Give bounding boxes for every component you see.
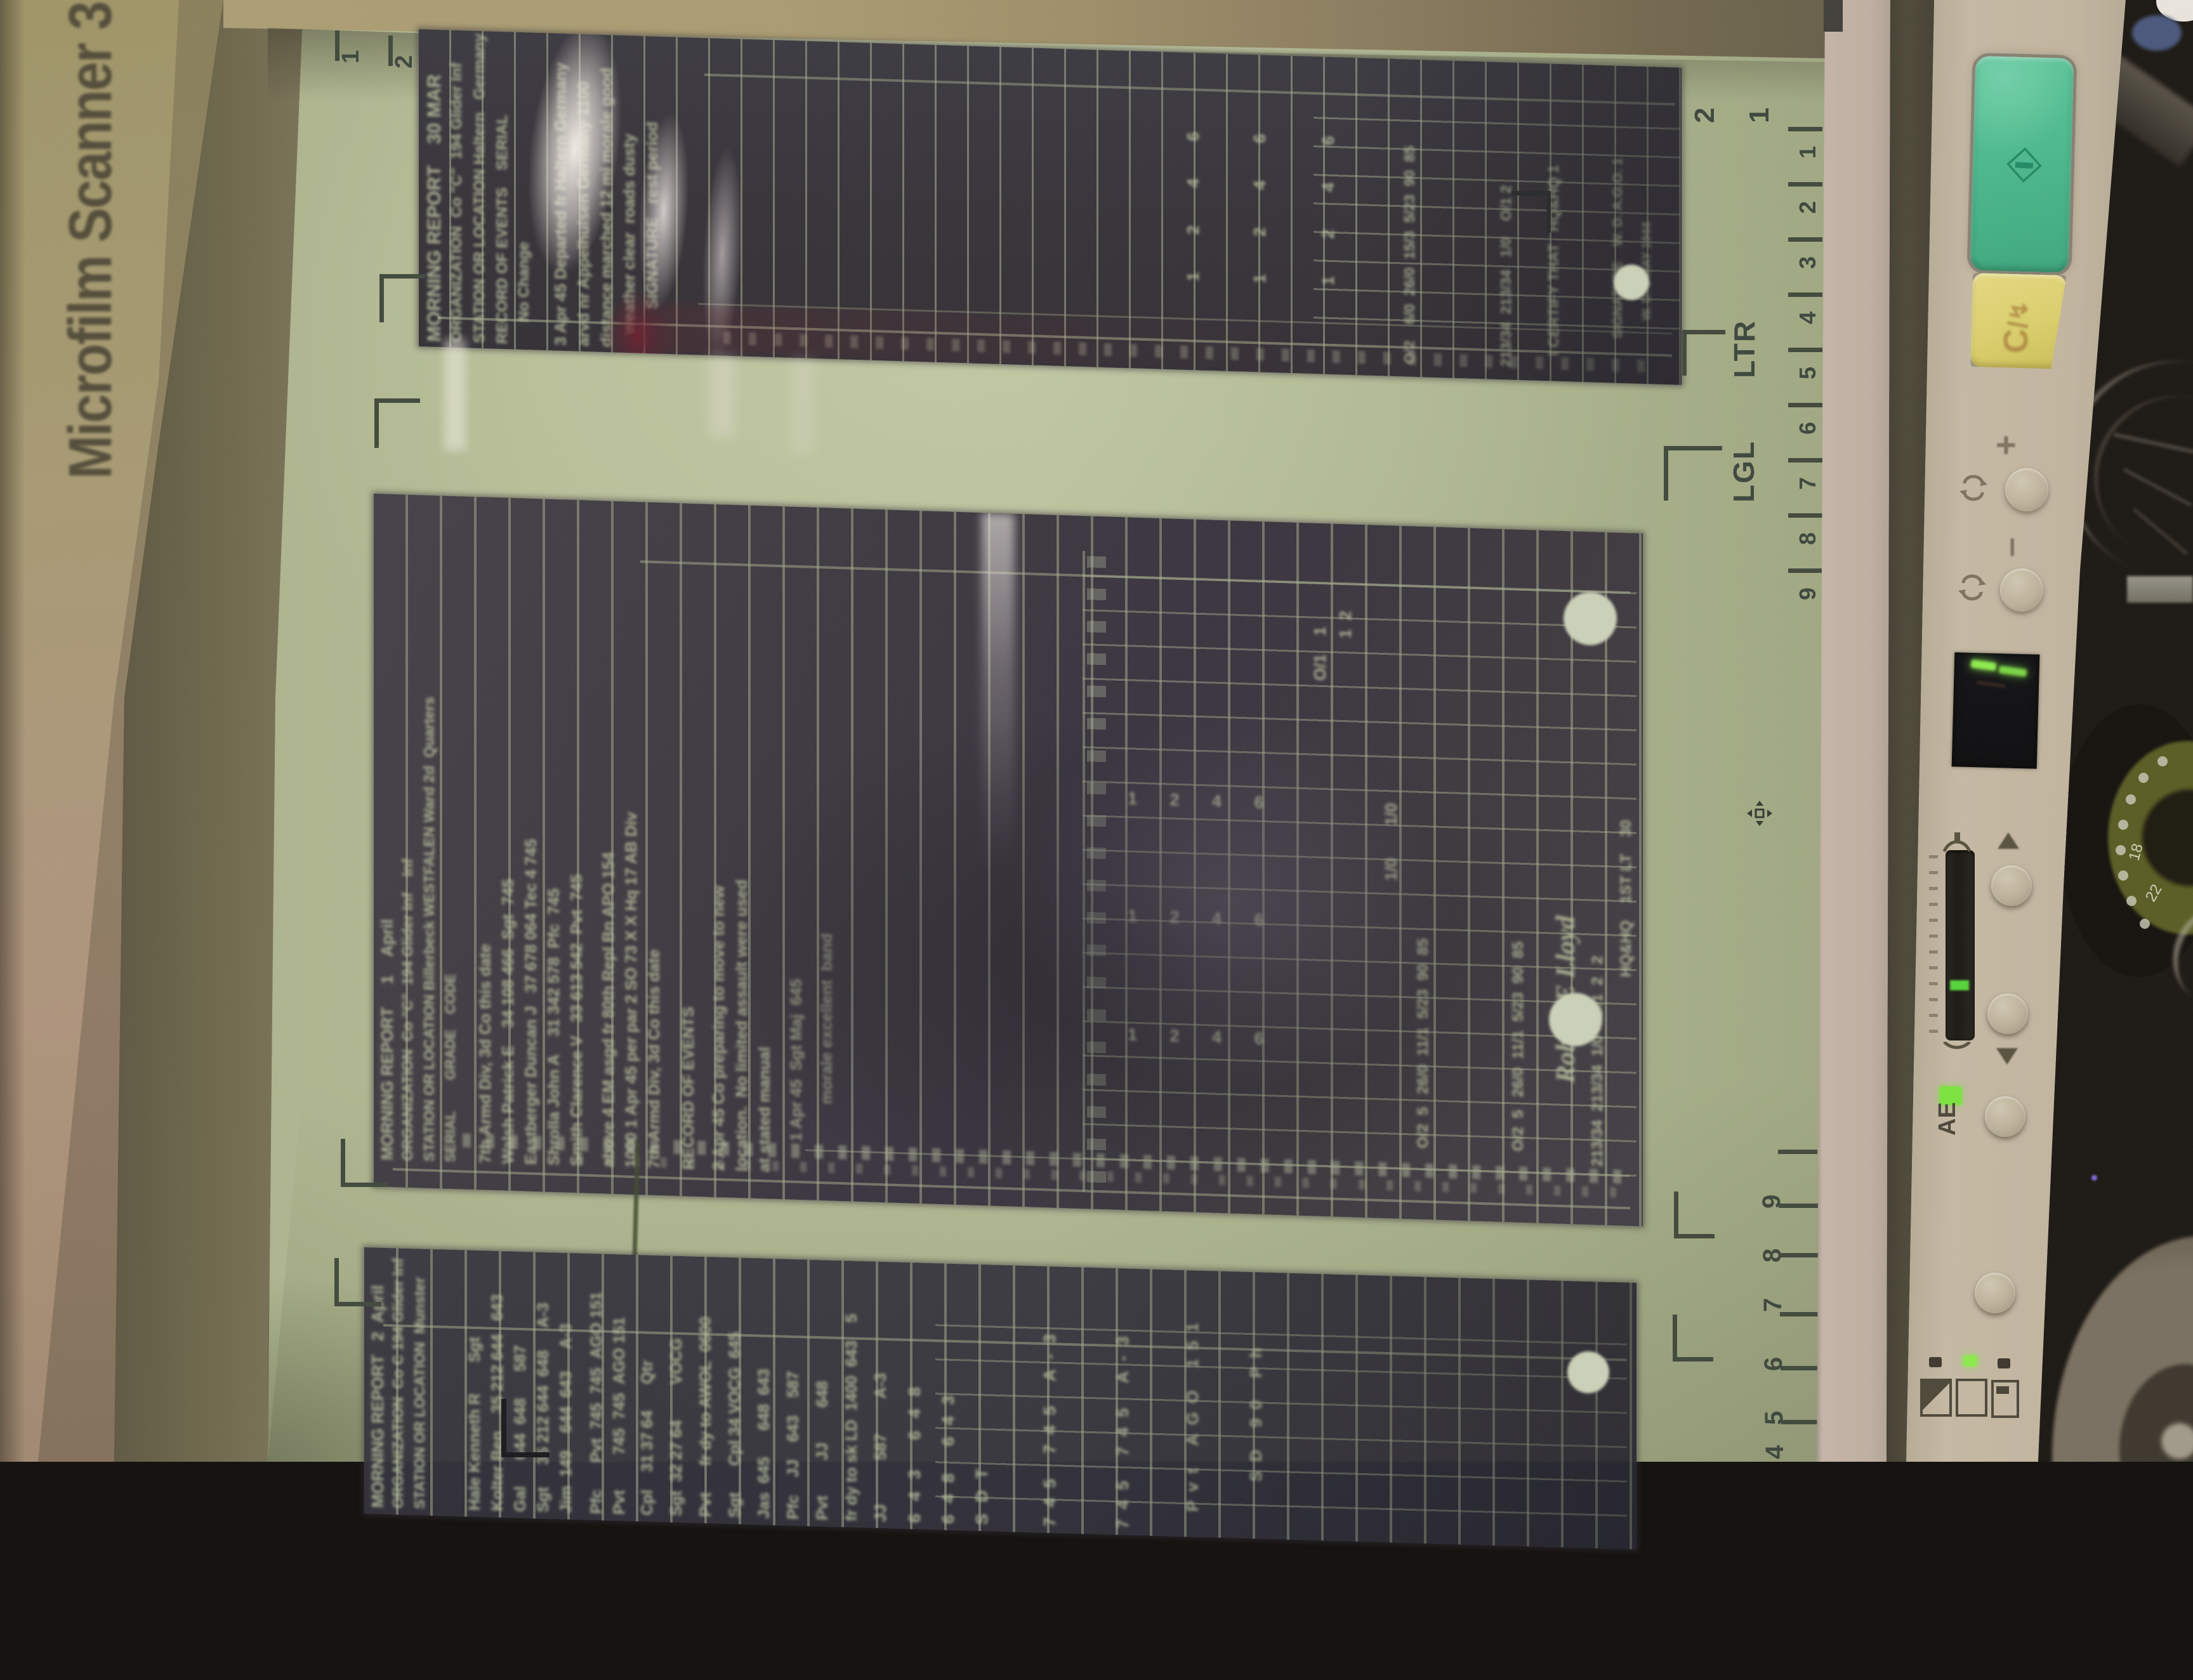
svg-text:18: 18 <box>2126 842 2147 863</box>
svg-text:22: 22 <box>2142 881 2166 905</box>
